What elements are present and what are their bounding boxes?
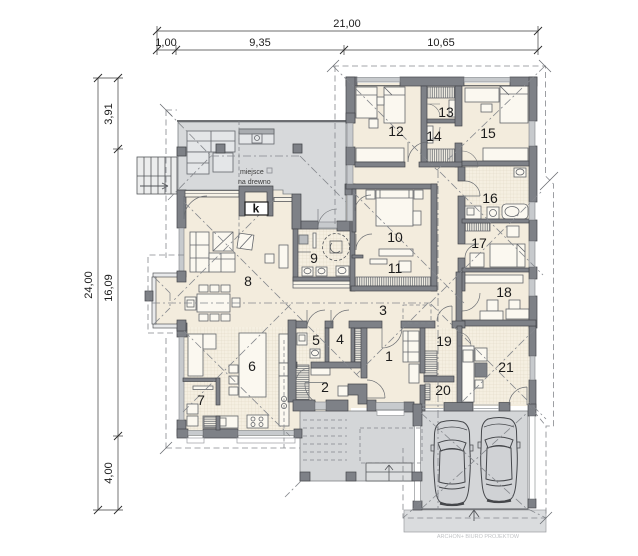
svg-text:12: 12 — [388, 123, 404, 139]
svg-text:15: 15 — [480, 125, 496, 141]
svg-text:6: 6 — [248, 358, 256, 374]
svg-text:9,35: 9,35 — [249, 37, 270, 49]
svg-text:1: 1 — [385, 348, 393, 364]
svg-text:7: 7 — [197, 392, 205, 408]
svg-text:24,00: 24,00 — [83, 271, 95, 299]
svg-text:17: 17 — [471, 235, 487, 251]
svg-text:10,65: 10,65 — [427, 37, 455, 49]
svg-text:4,00: 4,00 — [103, 462, 115, 483]
svg-text:21,00: 21,00 — [333, 18, 361, 30]
svg-text:16,09: 16,09 — [103, 274, 115, 302]
svg-text:13: 13 — [438, 104, 454, 120]
svg-text:19: 19 — [436, 333, 452, 349]
svg-text:18: 18 — [496, 284, 512, 300]
svg-text:11: 11 — [388, 260, 403, 276]
svg-text:21: 21 — [498, 359, 514, 375]
svg-text:k: k — [253, 202, 260, 216]
svg-text:10: 10 — [387, 229, 403, 245]
svg-text:ARCHON+ BIURO PROJEKTOW: ARCHON+ BIURO PROJEKTOW — [437, 534, 520, 540]
svg-text:na drewno: na drewno — [238, 179, 271, 186]
svg-text:1,00: 1,00 — [155, 37, 176, 49]
svg-text:3: 3 — [379, 302, 387, 318]
svg-text:3,91: 3,91 — [103, 103, 115, 124]
svg-text:9: 9 — [310, 250, 318, 266]
svg-text:miejsce: miejsce — [240, 169, 264, 176]
svg-text:16: 16 — [482, 190, 498, 206]
svg-text:4: 4 — [336, 331, 344, 347]
svg-text:5: 5 — [312, 332, 320, 348]
svg-text:8: 8 — [244, 273, 252, 289]
svg-text:20: 20 — [435, 382, 451, 398]
svg-text:2: 2 — [321, 379, 329, 395]
svg-text:14: 14 — [426, 128, 442, 144]
